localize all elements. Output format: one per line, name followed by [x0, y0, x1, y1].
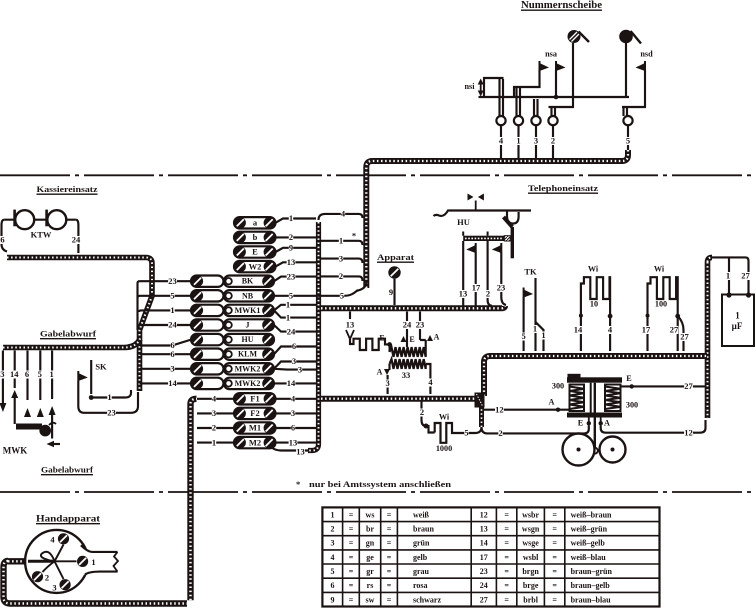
- svg-text:wsbr: wsbr: [522, 510, 539, 519]
- svg-text:=: =: [349, 510, 354, 519]
- svg-text:=: =: [552, 525, 557, 534]
- svg-text:13: 13: [287, 257, 296, 267]
- svg-text:=: =: [504, 567, 509, 576]
- svg-text:HU: HU: [457, 217, 470, 227]
- svg-text:13: 13: [480, 525, 488, 534]
- svg-text:F2: F2: [250, 408, 259, 418]
- svg-text:2: 2: [212, 423, 216, 433]
- svg-text:300: 300: [552, 382, 564, 391]
- svg-text:rs: rs: [367, 581, 374, 590]
- svg-text:nsd: nsd: [640, 50, 653, 59]
- svg-text:=: =: [349, 525, 354, 534]
- svg-text:gelb: gelb: [413, 553, 428, 562]
- svg-text:6: 6: [0, 235, 4, 245]
- svg-text:6: 6: [25, 369, 29, 379]
- svg-text:braun–grün: braun–grün: [571, 567, 613, 576]
- svg-text:12: 12: [480, 510, 488, 519]
- svg-text:2: 2: [339, 271, 343, 281]
- svg-text:nsi: nsi: [464, 82, 475, 91]
- svg-text:23: 23: [497, 283, 506, 293]
- svg-text:weiß–grün: weiß–grün: [571, 525, 608, 534]
- svg-text:1: 1: [286, 312, 290, 322]
- svg-text:SK: SK: [95, 362, 107, 372]
- svg-text:NB: NB: [242, 291, 254, 300]
- svg-text:=: =: [387, 510, 392, 519]
- svg-text:12: 12: [495, 404, 504, 414]
- svg-text:nsa: nsa: [545, 50, 557, 59]
- svg-text:Gabelabwurf: Gabelabwurf: [41, 465, 93, 475]
- svg-text:2: 2: [331, 525, 335, 534]
- svg-text:1: 1: [170, 305, 174, 315]
- svg-text:5: 5: [340, 291, 344, 301]
- svg-text:=: =: [349, 581, 354, 590]
- svg-text:=: =: [552, 595, 557, 604]
- svg-text:3: 3: [0, 369, 4, 379]
- svg-text:9: 9: [389, 287, 393, 297]
- svg-text:E: E: [252, 247, 258, 257]
- svg-text:1: 1: [286, 300, 290, 310]
- svg-text:MWK: MWK: [3, 445, 28, 455]
- svg-text:Apparat: Apparat: [377, 252, 414, 262]
- svg-text:MWK1: MWK1: [235, 306, 261, 315]
- svg-text:E: E: [626, 374, 632, 383]
- svg-text:br: br: [366, 525, 374, 534]
- svg-text:2: 2: [420, 407, 424, 417]
- svg-text:weiß–gelb: weiß–gelb: [571, 539, 606, 548]
- svg-text:=: =: [504, 553, 509, 562]
- svg-text:33: 33: [402, 370, 411, 380]
- svg-text:10: 10: [590, 300, 598, 309]
- svg-text:24: 24: [480, 581, 488, 590]
- svg-text:3: 3: [534, 136, 538, 146]
- svg-text:14: 14: [168, 378, 177, 388]
- svg-text:13: 13: [346, 320, 355, 330]
- svg-text:weiß: weiß: [413, 510, 430, 519]
- svg-text:gn: gn: [366, 539, 375, 548]
- svg-text:2: 2: [486, 289, 490, 299]
- svg-text:9: 9: [331, 595, 335, 604]
- svg-text:KLM: KLM: [238, 350, 258, 359]
- svg-text:13: 13: [296, 447, 305, 457]
- svg-text:E: E: [409, 335, 414, 344]
- svg-text:MWK2: MWK2: [235, 364, 261, 373]
- svg-text:1000: 1000: [436, 444, 452, 453]
- svg-text:TK: TK: [524, 267, 537, 277]
- svg-text:4: 4: [331, 553, 335, 562]
- svg-text:weiß–braun: weiß–braun: [571, 510, 612, 519]
- svg-text:µF: µF: [732, 321, 743, 331]
- svg-text:HU: HU: [242, 335, 254, 344]
- svg-text:=: =: [552, 553, 557, 562]
- svg-text:*: *: [352, 231, 356, 241]
- svg-text:5: 5: [521, 331, 525, 341]
- svg-text:Wi: Wi: [654, 265, 665, 274]
- svg-text:J: J: [246, 321, 250, 330]
- svg-text:27: 27: [741, 271, 750, 281]
- svg-text:13: 13: [459, 289, 468, 299]
- svg-text:wsbl: wsbl: [523, 553, 539, 562]
- svg-text:braun–blau: braun–blau: [571, 595, 612, 604]
- svg-text:=: =: [387, 567, 392, 576]
- svg-text:23: 23: [107, 408, 116, 418]
- svg-text:=: =: [387, 595, 392, 604]
- svg-text:6: 6: [170, 349, 174, 359]
- svg-text:3: 3: [212, 408, 216, 418]
- svg-text:A: A: [377, 368, 383, 377]
- svg-text:braun–gelb: braun–gelb: [571, 581, 611, 590]
- svg-text:14: 14: [10, 369, 19, 379]
- svg-text:5: 5: [38, 369, 42, 379]
- svg-text:1: 1: [533, 324, 537, 334]
- svg-text:=: =: [504, 539, 509, 548]
- svg-text:KTW: KTW: [31, 230, 52, 240]
- svg-text:23: 23: [480, 567, 488, 576]
- svg-text:Kassiereinsatz: Kassiereinsatz: [37, 184, 98, 194]
- svg-text:1: 1: [49, 369, 53, 379]
- svg-text:=: =: [349, 553, 354, 562]
- svg-text:Wi: Wi: [588, 265, 599, 274]
- svg-text:5: 5: [626, 136, 630, 146]
- svg-text:sw: sw: [366, 595, 375, 604]
- svg-text:24: 24: [72, 235, 81, 245]
- svg-text:A: A: [434, 333, 440, 342]
- svg-text:F1: F1: [250, 394, 259, 404]
- svg-text:3: 3: [291, 408, 295, 418]
- svg-text:24: 24: [287, 326, 296, 336]
- svg-text:27: 27: [680, 332, 689, 342]
- svg-text:1: 1: [212, 437, 216, 447]
- svg-text:1: 1: [541, 330, 545, 340]
- svg-text:12: 12: [684, 427, 693, 437]
- svg-text:=: =: [349, 539, 354, 548]
- svg-text:5: 5: [331, 567, 335, 576]
- svg-text:*: *: [296, 479, 300, 489]
- svg-text:14: 14: [287, 378, 296, 388]
- svg-text:23: 23: [287, 271, 296, 281]
- svg-text:A: A: [549, 398, 555, 407]
- svg-text:2: 2: [289, 232, 293, 242]
- svg-text:6: 6: [331, 581, 335, 590]
- svg-text:3: 3: [298, 364, 302, 374]
- svg-text:9: 9: [289, 243, 293, 253]
- svg-text:=: =: [552, 510, 557, 519]
- svg-text:nur bei Amtssystem anschließen: nur bei Amtssystem anschließen: [309, 480, 452, 489]
- svg-text:=: =: [552, 539, 557, 548]
- svg-text:2: 2: [551, 136, 555, 146]
- svg-text:3: 3: [339, 253, 343, 263]
- svg-text:Wi: Wi: [439, 413, 450, 422]
- svg-text:27: 27: [670, 325, 679, 335]
- svg-text:=: =: [349, 567, 354, 576]
- svg-text:schwarz: schwarz: [413, 595, 441, 604]
- svg-text:3: 3: [292, 356, 296, 366]
- svg-text:3: 3: [52, 583, 56, 593]
- svg-text:27: 27: [684, 381, 693, 391]
- svg-text:Telephoneinsatz: Telephoneinsatz: [528, 183, 598, 193]
- svg-text:2: 2: [45, 573, 49, 583]
- svg-text:gr: gr: [366, 567, 374, 576]
- svg-text:grün: grün: [413, 539, 430, 548]
- svg-text:23: 23: [168, 276, 177, 286]
- svg-text:300: 300: [626, 401, 638, 410]
- svg-text:M2: M2: [249, 437, 261, 447]
- svg-text:17: 17: [472, 283, 481, 293]
- svg-text:wsge: wsge: [522, 539, 539, 548]
- svg-text:A: A: [604, 419, 610, 428]
- svg-text:=: =: [552, 567, 557, 576]
- svg-text:=: =: [387, 539, 392, 548]
- svg-text:=: =: [504, 525, 509, 534]
- svg-text:weiß–blau: weiß–blau: [571, 553, 607, 562]
- svg-text:3: 3: [331, 539, 335, 548]
- svg-text:E: E: [578, 419, 584, 428]
- svg-text:1: 1: [339, 236, 343, 246]
- svg-text:17: 17: [642, 325, 651, 335]
- svg-text:Gabelabwurf: Gabelabwurf: [40, 329, 96, 339]
- svg-text:brgn: brgn: [522, 567, 539, 576]
- svg-text:24: 24: [168, 320, 177, 330]
- svg-text:24: 24: [403, 320, 412, 330]
- svg-text:E: E: [379, 334, 384, 343]
- svg-text:brbl: brbl: [523, 595, 538, 604]
- svg-text:6: 6: [292, 341, 296, 351]
- svg-text:6: 6: [291, 423, 295, 433]
- svg-text:=: =: [504, 581, 509, 590]
- svg-text:wsgn: wsgn: [522, 525, 540, 534]
- svg-text:1: 1: [516, 136, 520, 146]
- svg-text:1: 1: [726, 271, 730, 281]
- svg-text:=: =: [504, 510, 509, 519]
- svg-text:14: 14: [574, 325, 583, 335]
- svg-text:5: 5: [170, 291, 174, 301]
- svg-text:2: 2: [498, 428, 502, 438]
- svg-text:=: =: [504, 595, 509, 604]
- svg-text:23: 23: [416, 320, 425, 330]
- svg-text:17: 17: [480, 553, 488, 562]
- svg-text:MWK2: MWK2: [235, 379, 261, 388]
- svg-text:=: =: [387, 553, 392, 562]
- svg-text:27: 27: [480, 595, 488, 604]
- svg-text:BK: BK: [242, 277, 254, 286]
- svg-text:5: 5: [464, 428, 468, 438]
- svg-text:1: 1: [107, 392, 111, 402]
- svg-text:ge: ge: [366, 553, 374, 562]
- svg-text:braun: braun: [413, 525, 434, 534]
- svg-text:6: 6: [170, 340, 174, 350]
- svg-text:grau: grau: [413, 567, 430, 576]
- svg-text:1: 1: [735, 311, 740, 321]
- svg-text:3: 3: [385, 378, 389, 388]
- svg-text:=: =: [387, 525, 392, 534]
- svg-text:Nummernscheibe: Nummernscheibe: [521, 0, 603, 11]
- svg-text:1: 1: [289, 213, 293, 223]
- svg-text:M1: M1: [249, 423, 261, 433]
- svg-text:ws: ws: [366, 510, 375, 519]
- svg-text:b: b: [253, 232, 258, 242]
- svg-text:=: =: [387, 581, 392, 590]
- svg-text:brge: brge: [523, 581, 539, 590]
- svg-text:rosa: rosa: [413, 581, 428, 590]
- svg-text:14: 14: [480, 539, 488, 548]
- svg-text:3: 3: [170, 364, 174, 374]
- svg-text:=: =: [349, 595, 354, 604]
- svg-text:=: =: [552, 581, 557, 590]
- svg-text:100: 100: [655, 300, 667, 309]
- svg-text:W2: W2: [249, 261, 262, 271]
- svg-text:1: 1: [331, 510, 335, 519]
- svg-text:1: 1: [91, 557, 95, 567]
